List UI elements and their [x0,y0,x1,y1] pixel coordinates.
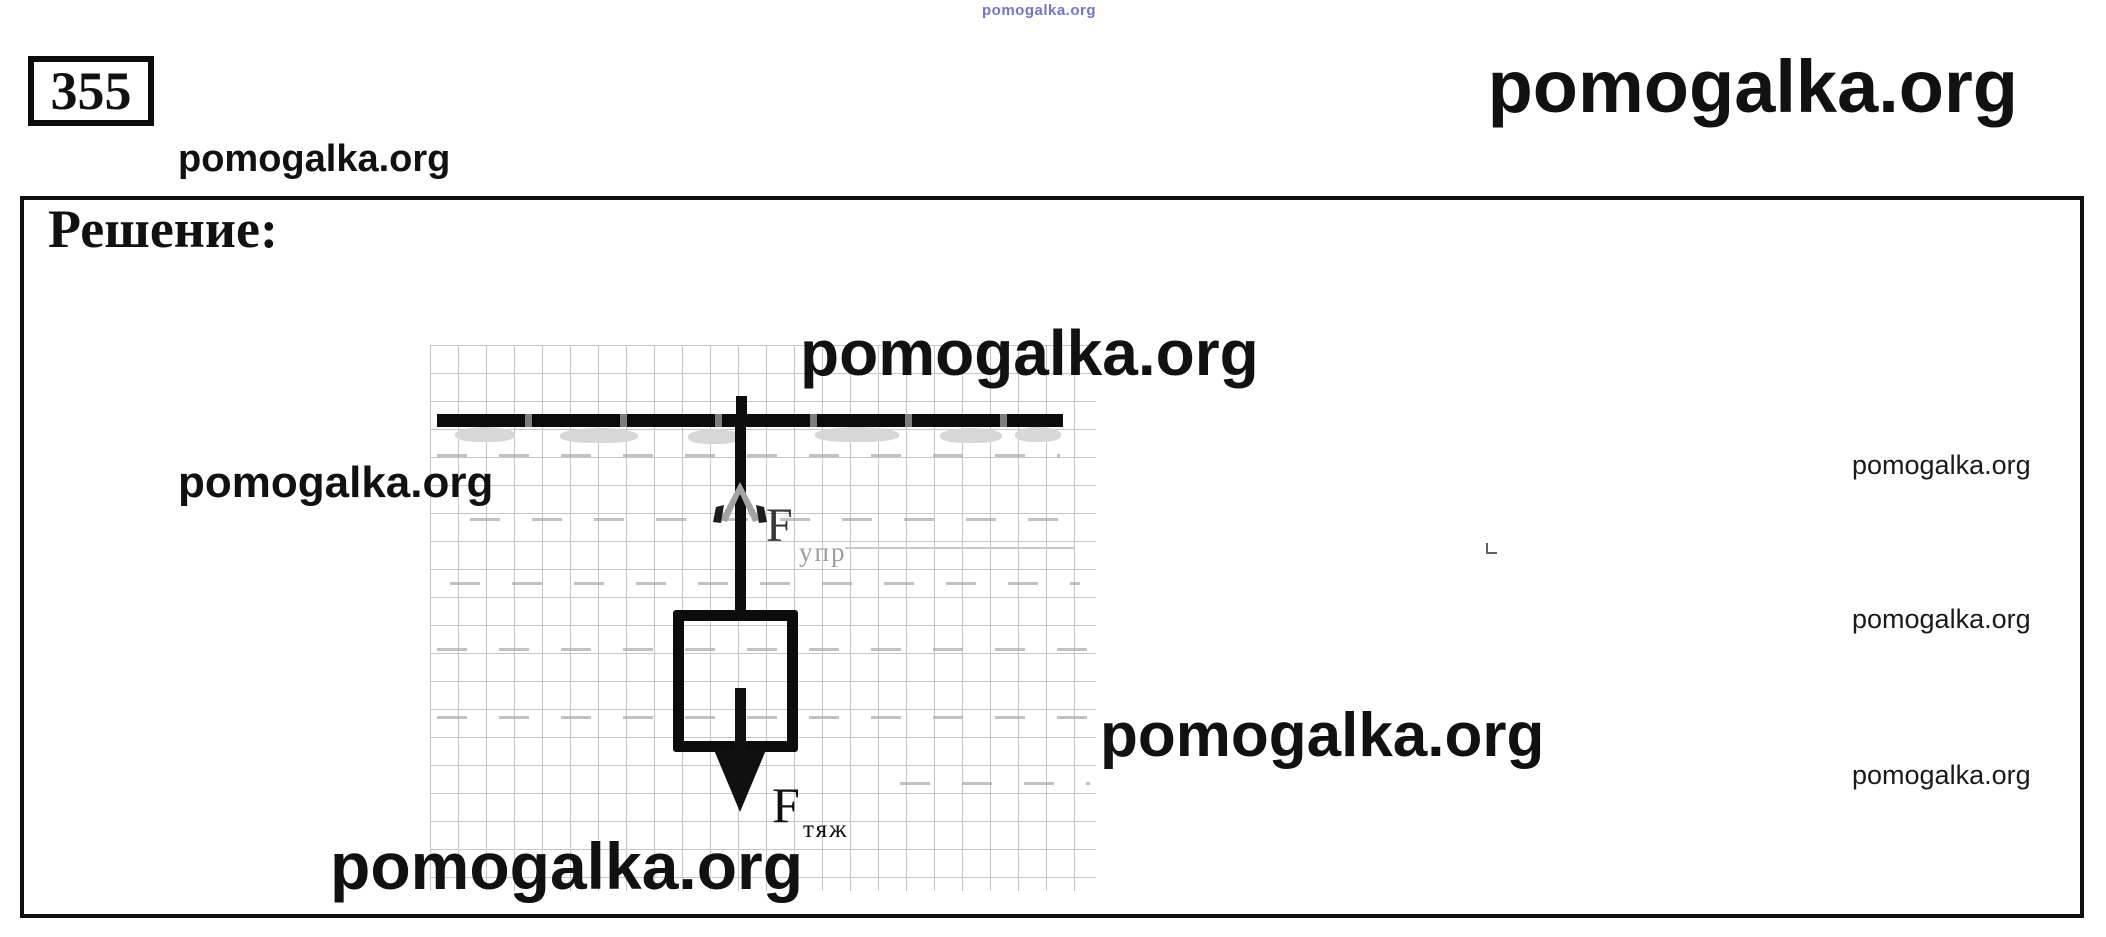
gravity-force-subscript: тяж [803,816,848,844]
watermark-top-small: pomogalka.org [982,2,1096,19]
scan-artifact-row [437,454,1060,457]
elastic-force-up-arrow-icon [710,482,770,524]
watermark-top-right: pomogalka.org [1488,46,2018,127]
watermark-under-number: pomogalka.org [178,138,450,181]
watermark-right-3: pomogalka.org [1852,760,2031,791]
watermark-diagram-bottom: pomogalka.org [330,828,803,904]
watermark-mid-right: pomogalka.org [1100,700,1544,771]
watermark-right-2: pomogalka.org [1852,604,2031,635]
problem-number: 355 [51,60,132,122]
scan-artifact-row [450,582,1080,585]
scan-artifact-row [900,782,1090,785]
watermark-right-1: pomogalka.org [1852,450,2031,481]
elastic-force-subscript: упр [799,537,846,568]
stray-scan-mark [1486,543,1497,554]
solution-heading: Решение: [48,198,278,260]
watermark-left-mid: pomogalka.org [178,458,493,508]
gravity-force-down-arrow-icon [714,750,766,812]
ceiling-shadow [455,427,515,442]
ceiling-shadow [940,428,1002,443]
page: pomogalka.org 355 pomogalka.org pomogalk… [0,0,2106,937]
ceiling-line [437,414,1063,427]
ceiling-shadow [560,428,638,443]
scan-artifact-line [845,547,1075,549]
ceiling-shadow [1015,427,1061,442]
ceiling-shadow [688,429,740,444]
elastic-force-symbol: F [766,498,793,553]
problem-number-box: 355 [28,56,154,126]
gravity-force-symbol: F [772,776,800,834]
attachment-stub [736,396,747,416]
watermark-diagram-top: pomogalka.org [800,316,1259,390]
ceiling-shadow [815,427,899,442]
